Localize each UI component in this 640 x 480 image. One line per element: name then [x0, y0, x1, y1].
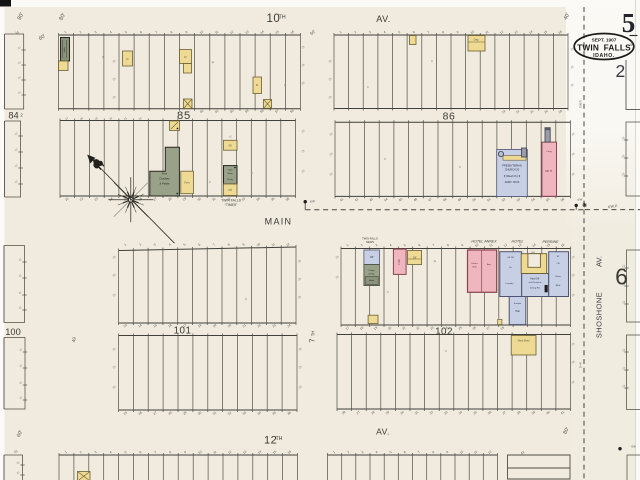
svg-text:Lodge: Lodge [399, 258, 401, 265]
svg-text:TH: TH [311, 331, 316, 337]
svg-text:6′W: 6′W [577, 197, 583, 202]
svg-text:84: 84 [8, 110, 18, 120]
svg-text:& Pub: & Pub [369, 274, 376, 276]
svg-text:7: 7 [308, 338, 317, 342]
svg-text:Wool Shed: Wool Shed [518, 340, 530, 343]
svg-text:TH: TH [279, 15, 286, 21]
svg-text:Cabt: Cabt [228, 169, 233, 172]
svg-text:ADDIT- CHAS: ADDIT- CHAS [505, 181, 520, 184]
svg-text:AV.: AV. [595, 256, 604, 267]
svg-text:PRESBYTERIAN: PRESBYTERIAN [502, 165, 522, 168]
svg-text:PERRINE: PERRINE [543, 240, 560, 244]
svg-text:30: 30 [228, 144, 232, 148]
svg-text:Cong: Cong [546, 151, 552, 153]
svg-text:6: 6 [615, 264, 628, 290]
svg-text:$ (Wood Ch.) $: $ (Wood Ch.) $ [504, 175, 521, 178]
svg-text:Hotel Off.: Hotel Off. [530, 278, 540, 281]
svg-text:CHURCH 20: CHURCH 20 [505, 169, 520, 172]
svg-text:Furn: Furn [184, 181, 190, 185]
svg-text:6′W.P.: 6′W.P. [579, 100, 583, 108]
svg-text:SEPT. 1907: SEPT. 1907 [592, 37, 617, 42]
svg-text:Off: Off [557, 263, 560, 265]
svg-text:Furn: Furn [162, 172, 168, 176]
svg-text:NEWS: NEWS [366, 240, 374, 244]
svg-text:Parlor: Parlor [555, 275, 561, 278]
svg-text:“TIMES”: “TIMES” [225, 203, 238, 207]
svg-text:HOTEL: HOTEL [512, 240, 524, 244]
svg-text:AV.: AV. [376, 14, 391, 24]
svg-text:Hall: Hall [473, 266, 477, 268]
svg-text:TWIN FALLS: TWIN FALLS [362, 236, 378, 240]
svg-text:5: 5 [622, 8, 636, 38]
svg-text:TH: TH [276, 436, 283, 442]
svg-text:Crr: Crr [509, 266, 512, 269]
svg-text:AV.: AV. [376, 427, 390, 437]
svg-text:Laundry: Laundry [506, 282, 515, 285]
svg-text:Bill'd: Bill'd [556, 285, 561, 287]
svg-text:TWIN FALLS: TWIN FALLS [577, 43, 631, 53]
svg-text:Printg: Printg [369, 269, 375, 272]
svg-text:Hall: Hall [515, 310, 520, 313]
svg-text:Off: Off [228, 188, 232, 192]
svg-text:100: 100 [5, 327, 21, 337]
svg-text:Dining Rm: Dining Rm [530, 288, 540, 290]
svg-text:and Reception: and Reception [529, 281, 542, 284]
svg-text:& Paints: & Paints [160, 182, 170, 186]
svg-text:Dwg: Dwg [474, 39, 479, 42]
svg-text:Sample: Sample [514, 303, 522, 305]
svg-text:Crockery: Crockery [159, 177, 170, 181]
svg-text:SHOSHONE: SHOSHONE [595, 292, 604, 338]
svg-text:6′×4′: 6′×4′ [579, 361, 583, 368]
svg-text:Bsmt: Bsmt [369, 279, 374, 282]
svg-text:Shop: Shop [227, 173, 233, 175]
svg-text:MAIN: MAIN [265, 217, 293, 227]
svg-text:Dance: Dance [471, 263, 478, 265]
svg-text:85: 85 [177, 110, 191, 122]
svg-text:Implts: Implts [63, 47, 66, 52]
svg-text:6′W: 6′W [631, 445, 636, 449]
svg-text:Printg: Printg [227, 178, 233, 181]
svg-text:2: 2 [615, 61, 625, 81]
svg-text:Off: Off [370, 255, 374, 259]
svg-text:86: 86 [443, 112, 456, 123]
svg-text:IDAHO.: IDAHO. [593, 53, 615, 59]
svg-text:TWIN FALLS: TWIN FALLS [221, 199, 242, 203]
svg-text:OP. H.: OP. H. [545, 170, 552, 173]
svg-text:Off Off: Off Off [507, 257, 514, 259]
